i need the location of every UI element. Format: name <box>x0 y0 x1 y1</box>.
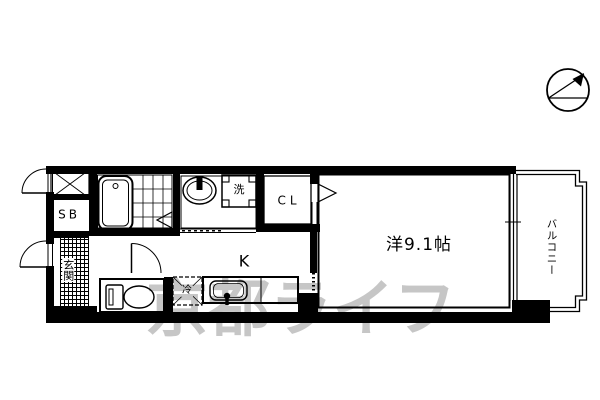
shoe-box-label: SB <box>58 209 80 222</box>
wall-entrance-bath <box>89 174 97 236</box>
western-room-label: 洋9.1帖 <box>386 237 452 255</box>
washer-pan-corner <box>249 200 256 207</box>
closet-label: CL <box>277 195 300 208</box>
balcony-window <box>505 174 521 301</box>
washroom <box>180 175 256 233</box>
wall-bottom-left <box>46 306 97 323</box>
washer-pan-corner <box>222 200 229 207</box>
bathtub-drain <box>113 184 118 189</box>
wall-left-a <box>46 166 54 170</box>
room-door-triangle <box>318 184 336 202</box>
meterbox-door-arc <box>22 169 46 193</box>
entrance-label: 玄関 <box>62 258 74 282</box>
bathtub-inner <box>103 180 129 226</box>
wall-closet-bottom <box>256 224 320 232</box>
wall-bath-washroom <box>173 174 180 234</box>
washbasin-tap <box>197 177 203 190</box>
balcony-label: バルコニー <box>545 218 556 276</box>
bathtub-outer <box>99 176 133 230</box>
meter-box <box>51 170 89 198</box>
watermark-text: 京都ライフ <box>146 258 456 348</box>
wall-washroom-closet <box>256 174 264 232</box>
entrance-door-arc <box>20 241 46 267</box>
floorplan-canvas: SB 玄関 洗 CL K 冷 洋9.1帖 バルコニー 京都ライフ <box>0 0 600 400</box>
north-arrow-icon <box>547 69 589 111</box>
washer-label: 洗 <box>234 184 245 196</box>
toilet-tank-detail <box>109 289 113 305</box>
wall-sb-bottom <box>50 231 89 238</box>
wall-top <box>46 166 516 174</box>
closet-right-face <box>312 202 317 224</box>
bathroom-door-triangle <box>157 212 172 228</box>
